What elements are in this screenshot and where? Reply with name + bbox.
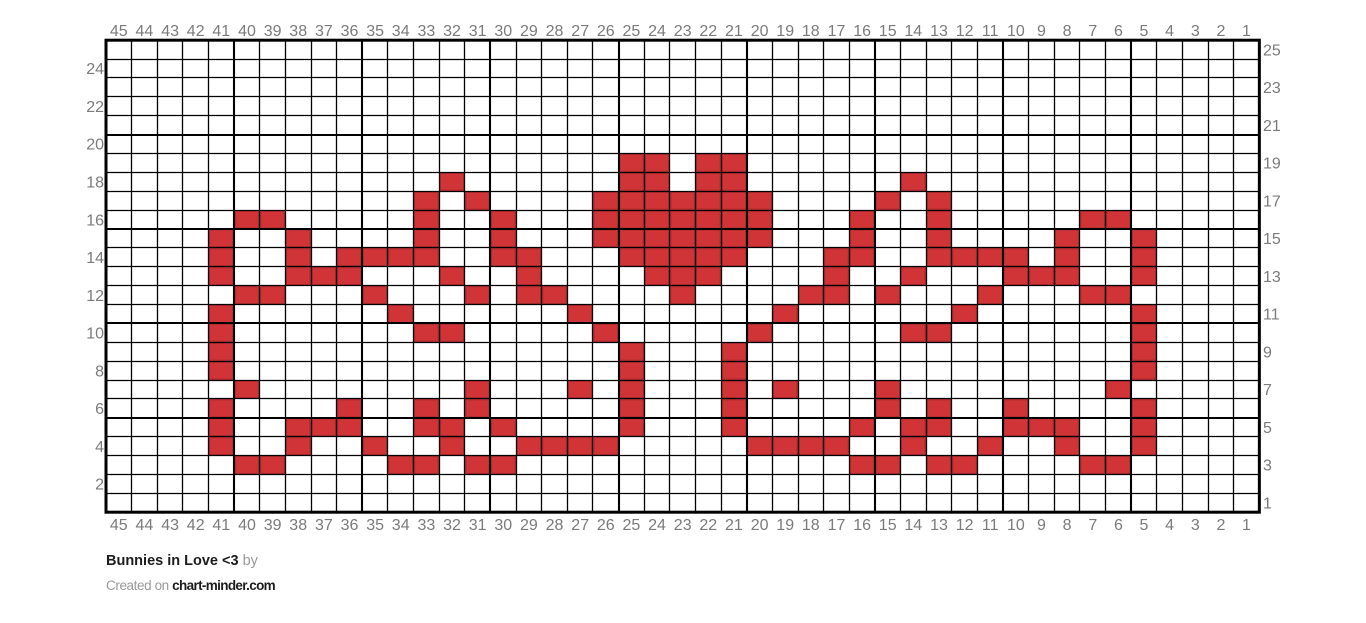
svg-text:5: 5 [1140,517,1149,534]
svg-text:36: 36 [341,23,359,40]
svg-text:8: 8 [95,363,104,380]
svg-text:2: 2 [1216,23,1225,40]
svg-text:35: 35 [366,23,384,40]
svg-text:44: 44 [136,23,154,40]
svg-text:7: 7 [1088,517,1097,534]
svg-text:9: 9 [1037,517,1046,534]
svg-text:29: 29 [520,23,538,40]
svg-text:12: 12 [956,23,974,40]
svg-text:30: 30 [494,517,512,534]
svg-text:12: 12 [956,517,974,534]
svg-text:9: 9 [1263,344,1272,361]
svg-text:7: 7 [1263,382,1272,399]
svg-text:19: 19 [1263,156,1281,173]
svg-text:25: 25 [623,517,641,534]
svg-text:39: 39 [264,517,282,534]
svg-text:18: 18 [802,517,820,534]
svg-text:3: 3 [1191,517,1200,534]
svg-text:40: 40 [238,517,256,534]
svg-text:31: 31 [469,23,487,40]
svg-text:32: 32 [443,23,461,40]
svg-text:20: 20 [751,517,769,534]
svg-text:20: 20 [751,23,769,40]
svg-text:1: 1 [1242,517,1251,534]
svg-text:41: 41 [212,23,230,40]
svg-text:41: 41 [212,517,230,534]
svg-text:8: 8 [1063,23,1072,40]
svg-text:27: 27 [571,517,589,534]
svg-text:20: 20 [86,137,104,154]
svg-text:17: 17 [1263,193,1281,210]
svg-text:14: 14 [904,517,922,534]
svg-text:6: 6 [95,401,104,418]
svg-text:13: 13 [1263,269,1281,286]
svg-text:14: 14 [86,250,104,267]
svg-text:28: 28 [546,23,564,40]
svg-text:21: 21 [725,23,743,40]
svg-text:23: 23 [674,23,692,40]
svg-text:13: 13 [930,23,948,40]
svg-text:44: 44 [136,517,154,534]
svg-text:18: 18 [86,175,104,192]
svg-text:6: 6 [1114,517,1123,534]
svg-text:32: 32 [443,517,461,534]
svg-text:21: 21 [1263,118,1281,135]
svg-text:35: 35 [366,517,384,534]
svg-text:12: 12 [86,288,104,305]
svg-text:33: 33 [418,23,436,40]
svg-text:1: 1 [1263,496,1272,513]
svg-text:39: 39 [264,23,282,40]
svg-text:42: 42 [187,23,205,40]
svg-text:11: 11 [982,517,999,534]
svg-text:38: 38 [289,517,307,534]
svg-text:40: 40 [238,23,256,40]
svg-text:37: 37 [315,517,333,534]
svg-text:16: 16 [853,23,871,40]
svg-text:17: 17 [828,23,846,40]
svg-text:25: 25 [623,23,641,40]
svg-text:18: 18 [802,23,820,40]
svg-text:1: 1 [1242,23,1251,40]
svg-text:21: 21 [725,517,743,534]
svg-text:23: 23 [674,517,692,534]
svg-text:26: 26 [597,517,615,534]
svg-text:4: 4 [1165,517,1174,534]
svg-text:15: 15 [879,517,897,534]
svg-text:43: 43 [161,517,179,534]
svg-text:16: 16 [86,212,104,229]
svg-text:36: 36 [341,517,359,534]
svg-text:22: 22 [86,99,104,116]
svg-text:5: 5 [1140,23,1149,40]
svg-text:19: 19 [776,23,794,40]
svg-text:14: 14 [904,23,922,40]
svg-text:9: 9 [1037,23,1046,40]
svg-text:24: 24 [648,23,666,40]
svg-text:2: 2 [95,477,104,494]
svg-text:3: 3 [1191,23,1200,40]
svg-text:10: 10 [1007,23,1025,40]
svg-text:31: 31 [469,517,487,534]
svg-text:23: 23 [1263,80,1281,97]
svg-text:13: 13 [930,517,948,534]
svg-text:17: 17 [828,517,846,534]
svg-text:10: 10 [86,326,104,343]
svg-text:15: 15 [879,23,897,40]
svg-text:28: 28 [546,517,564,534]
svg-text:43: 43 [161,23,179,40]
svg-text:22: 22 [699,23,717,40]
svg-text:29: 29 [520,517,538,534]
svg-text:33: 33 [418,517,436,534]
svg-text:27: 27 [571,23,589,40]
svg-text:3: 3 [1263,458,1272,475]
svg-text:2: 2 [1216,517,1225,534]
svg-text:5: 5 [1263,420,1272,437]
svg-text:24: 24 [86,61,104,78]
svg-text:26: 26 [597,23,615,40]
svg-text:38: 38 [289,23,307,40]
svg-text:15: 15 [1263,231,1281,248]
svg-text:45: 45 [110,517,128,534]
svg-text:37: 37 [315,23,333,40]
svg-text:34: 34 [392,517,410,534]
svg-text:30: 30 [494,23,512,40]
svg-text:25: 25 [1263,42,1281,59]
svg-text:11: 11 [982,23,999,40]
svg-text:22: 22 [699,517,717,534]
svg-text:42: 42 [187,517,205,534]
svg-text:45: 45 [110,23,128,40]
svg-text:7: 7 [1088,23,1097,40]
svg-text:24: 24 [648,517,666,534]
svg-text:34: 34 [392,23,410,40]
svg-text:8: 8 [1063,517,1072,534]
svg-text:16: 16 [853,517,871,534]
svg-text:19: 19 [776,517,794,534]
svg-text:4: 4 [1165,23,1174,40]
svg-text:4: 4 [95,439,104,456]
svg-text:6: 6 [1114,23,1123,40]
svg-text:11: 11 [1263,307,1280,324]
svg-text:10: 10 [1007,517,1025,534]
